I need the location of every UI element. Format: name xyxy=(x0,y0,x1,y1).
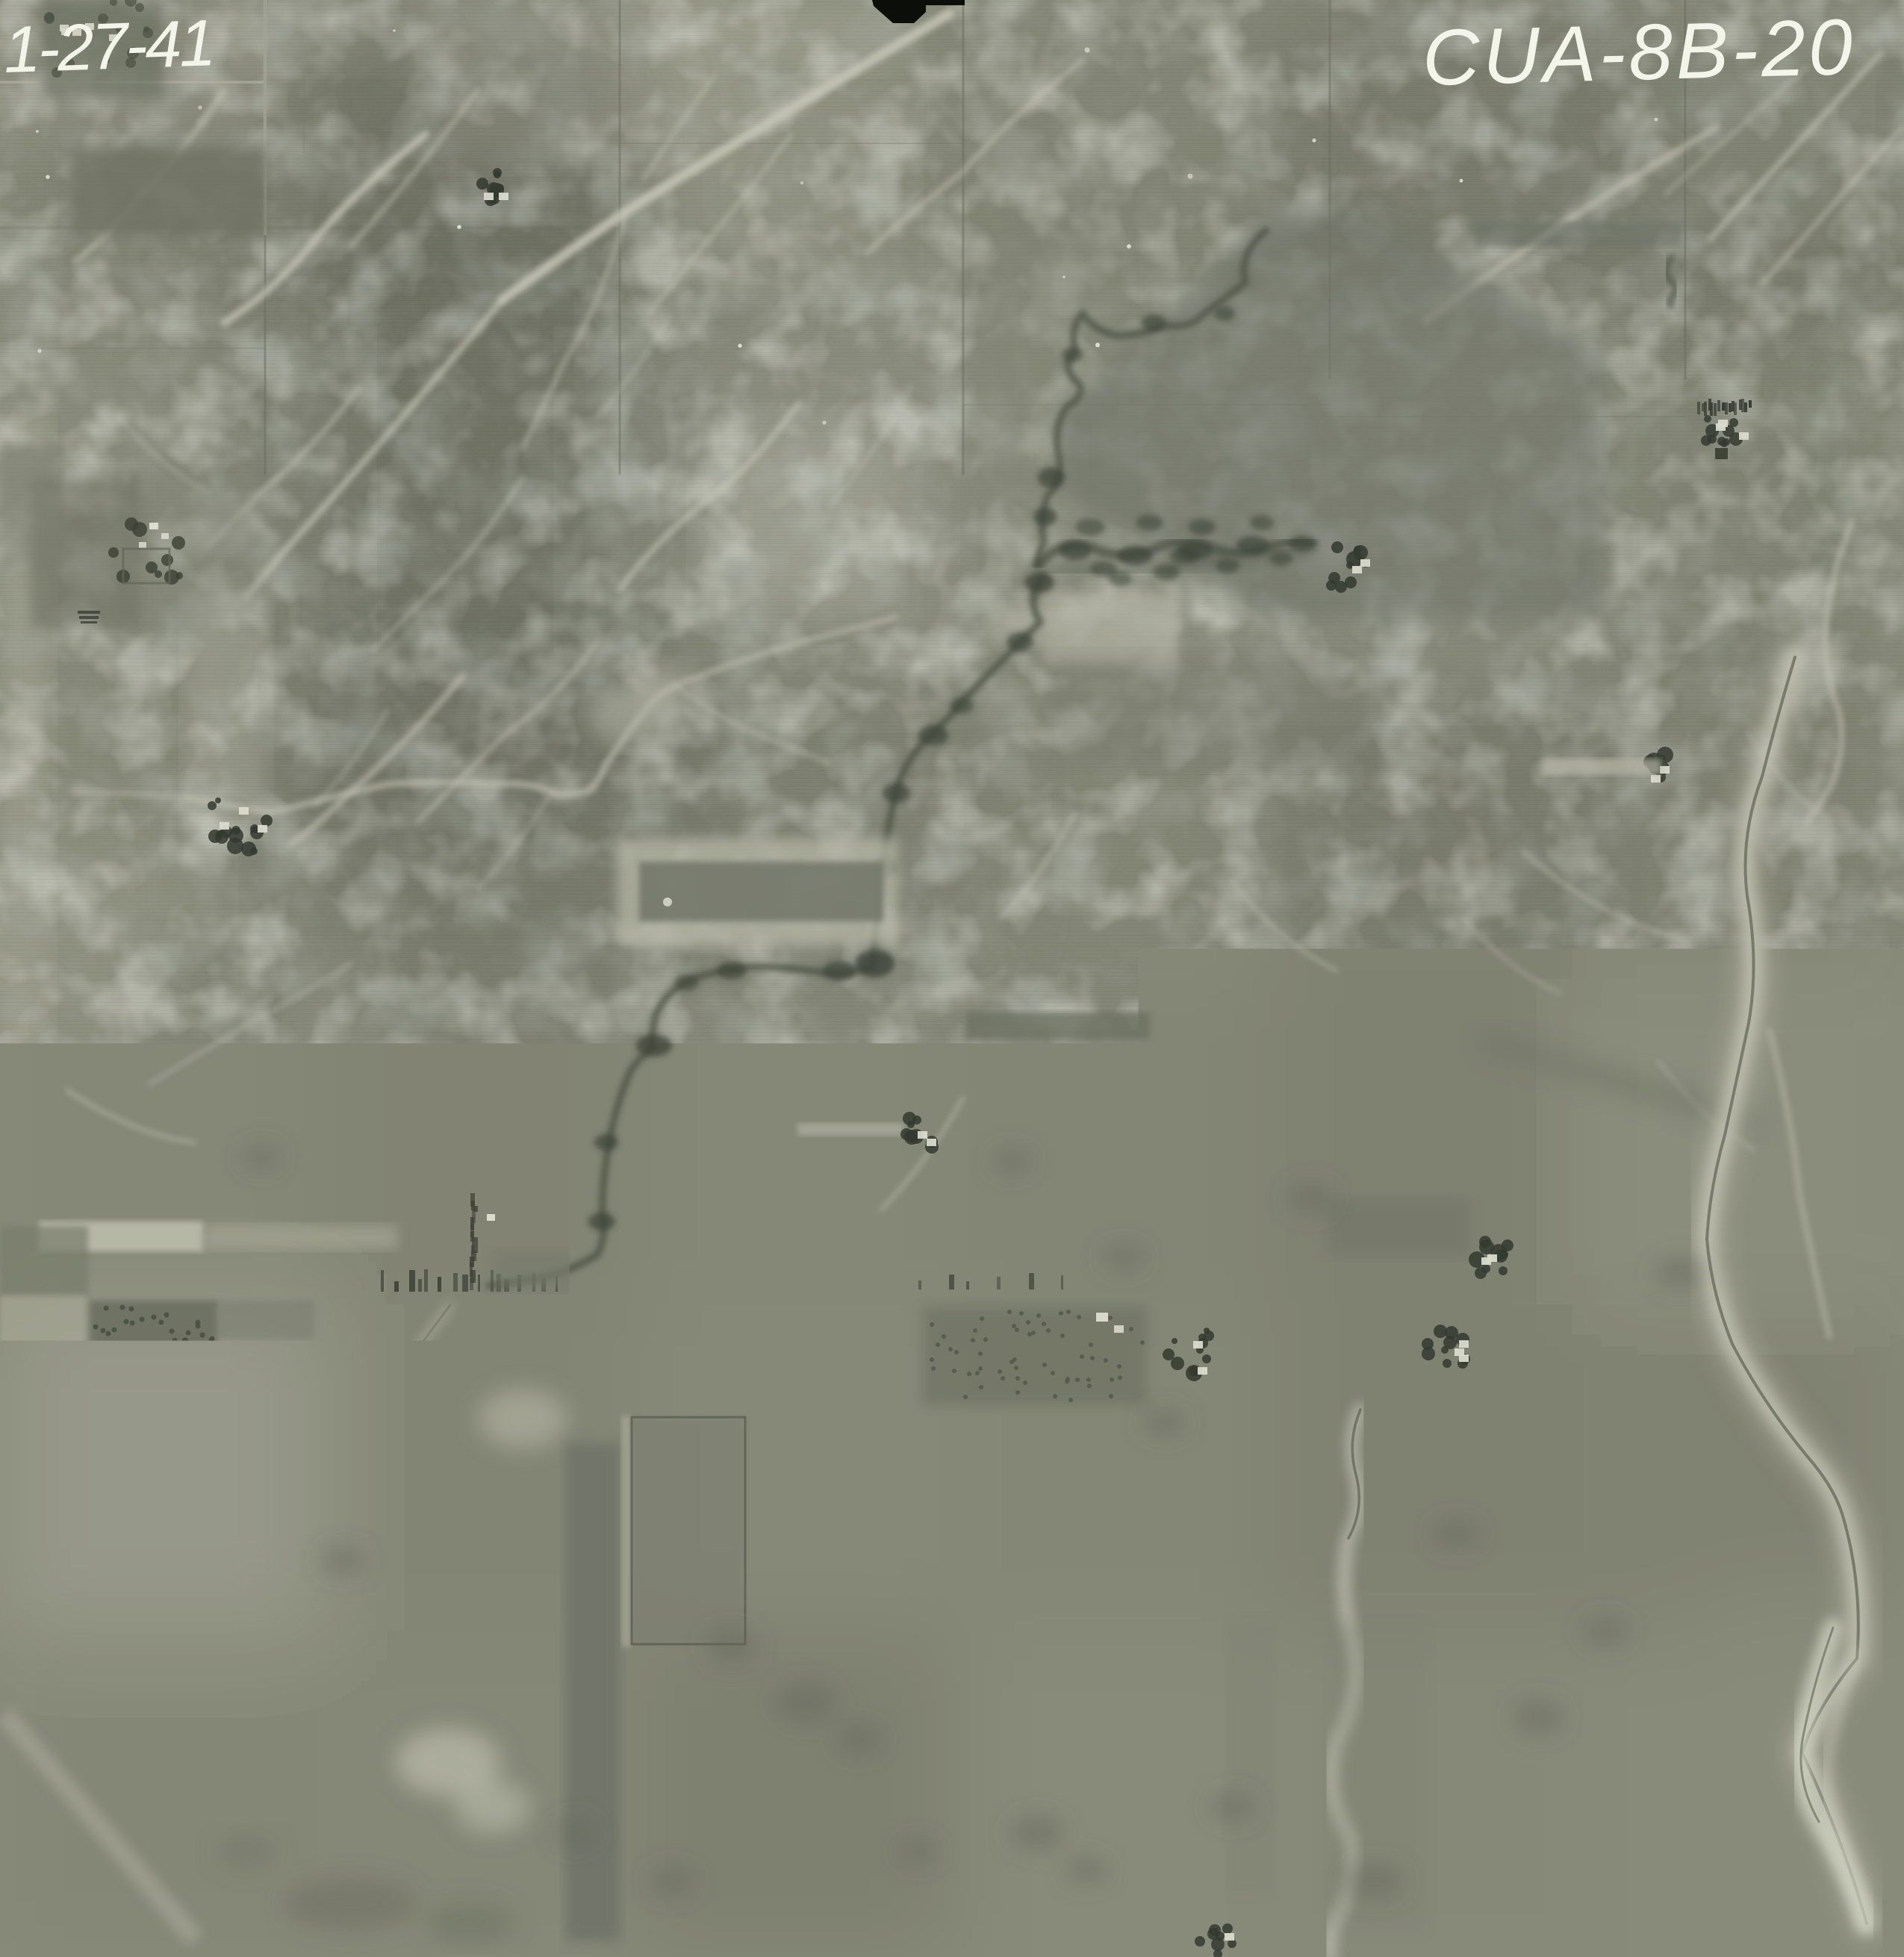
svg-text:CUA-8B-20: CUA-8B-20 xyxy=(1422,3,1855,102)
svg-text:1-27-41: 1-27-41 xyxy=(2,5,218,87)
